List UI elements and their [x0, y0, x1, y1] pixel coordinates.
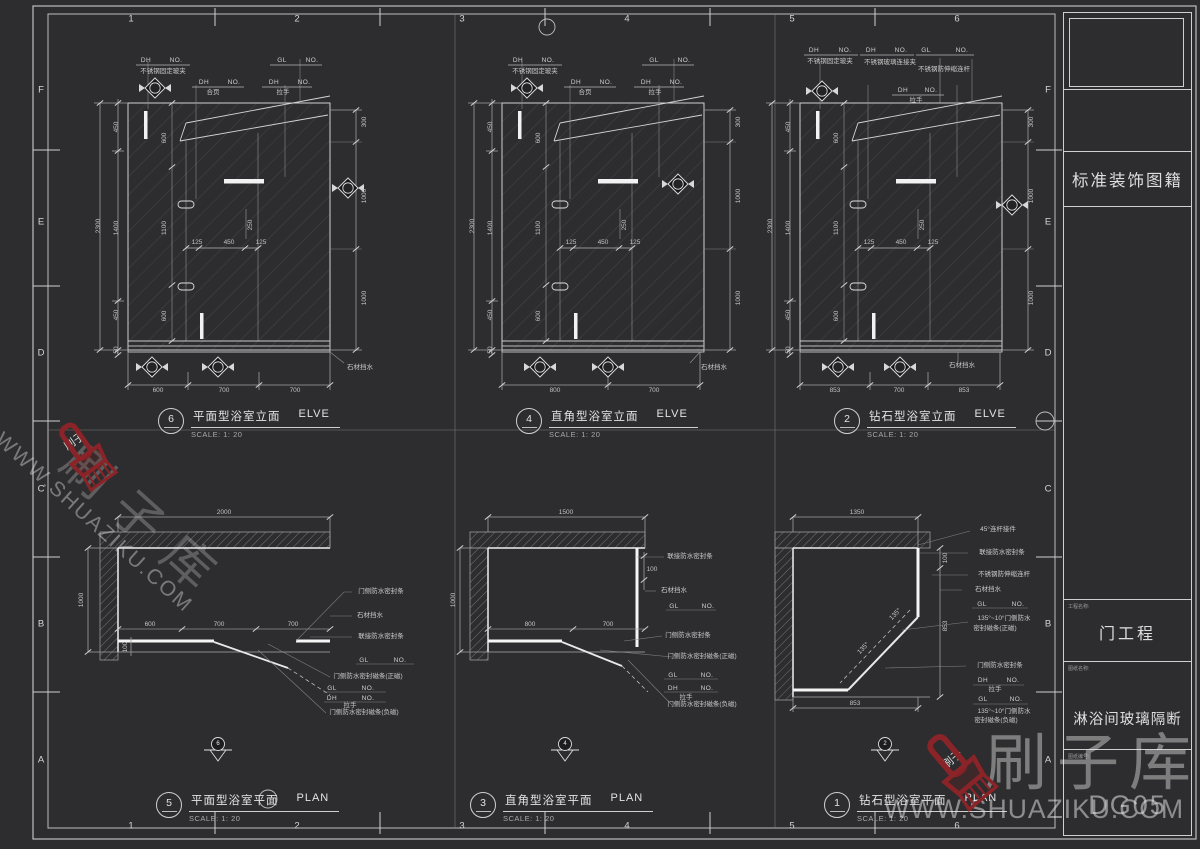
drawing-scale: SCALE: 1: 20	[857, 814, 1007, 823]
drawing-name: 钻石型浴室立面	[869, 408, 957, 424]
divider	[1064, 206, 1191, 207]
drawing-name: 平面型浴室平面	[191, 792, 279, 808]
drawing-name-value: 淋浴间玻璃隔断	[1064, 708, 1191, 729]
drawing-number-cell: 图纸编号: DG05	[1064, 749, 1191, 835]
drawing-number-label: 图纸编号:	[1064, 750, 1191, 760]
project-label: 工程名称:	[1064, 600, 1191, 610]
drawing-scale: SCALE: 1: 20	[867, 430, 1016, 439]
drawing-scale: SCALE: 1: 20	[549, 430, 698, 439]
drawing-number-bubble: 2	[834, 408, 860, 434]
drawing-number-bubble: 6	[158, 408, 184, 434]
drawing-title-2: 2 钻石型浴室立面ELVE SCALE: 1: 20	[834, 408, 1016, 439]
drawing-scale: SCALE: 1: 20	[503, 814, 653, 823]
drawing-name: 平面型浴室立面	[193, 408, 281, 424]
logo-box	[1069, 18, 1184, 87]
drawing-scale: SCALE: 1: 20	[189, 814, 339, 823]
drawing-title-4: 4 直角型浴室立面ELVE SCALE: 1: 20	[516, 408, 698, 439]
drawing-number-bubble: 3	[470, 792, 496, 818]
drawing-kind: ELVE	[975, 408, 1006, 424]
drawing-number: DG05	[1064, 790, 1191, 821]
title-block: 标准装饰图籍 工程名称: 门工程 图纸名称: 淋浴间玻璃隔断 图纸编号: DG0…	[1063, 12, 1192, 836]
drawing-name-label: 图纸名称:	[1064, 662, 1191, 672]
series-title: 标准装饰图籍	[1064, 151, 1191, 206]
drawing-number-bubble: 5	[156, 792, 182, 818]
project-name: 门工程	[1064, 620, 1191, 644]
drawing-sheet: 123456123456FEDCBAFEDCBADHNO.不锈钢固定玻夹GLNO…	[0, 0, 1200, 849]
drawing-title-1: 1 钻石型浴室平面PLAN SCALE: 1: 20	[824, 792, 1007, 823]
drawing-scale: SCALE: 1: 20	[191, 430, 340, 439]
drawing-kind: ELVE	[299, 408, 330, 424]
drawing-name: 直角型浴室立面	[551, 408, 639, 424]
drawing-title-3: 3 直角型浴室平面PLAN SCALE: 1: 20	[470, 792, 653, 823]
drawing-name: 钻石型浴室平面	[859, 792, 947, 808]
project-cell: 工程名称: 门工程	[1064, 599, 1191, 662]
drawing-title-5: 5 平面型浴室平面PLAN SCALE: 1: 20	[156, 792, 339, 823]
drawing-name-cell: 图纸名称: 淋浴间玻璃隔断	[1064, 661, 1191, 750]
drawing-kind: PLAN	[611, 792, 644, 808]
drawing-number-bubble: 4	[516, 408, 542, 434]
drawing-number-bubble: 1	[824, 792, 850, 818]
drawing-kind: PLAN	[965, 792, 998, 808]
drawing-name: 直角型浴室平面	[505, 792, 593, 808]
drawing-kind: ELVE	[657, 408, 688, 424]
drawing-title-6: 6 平面型浴室立面ELVE SCALE: 1: 20	[158, 408, 340, 439]
drawing-kind: PLAN	[297, 792, 330, 808]
divider	[1064, 89, 1191, 90]
